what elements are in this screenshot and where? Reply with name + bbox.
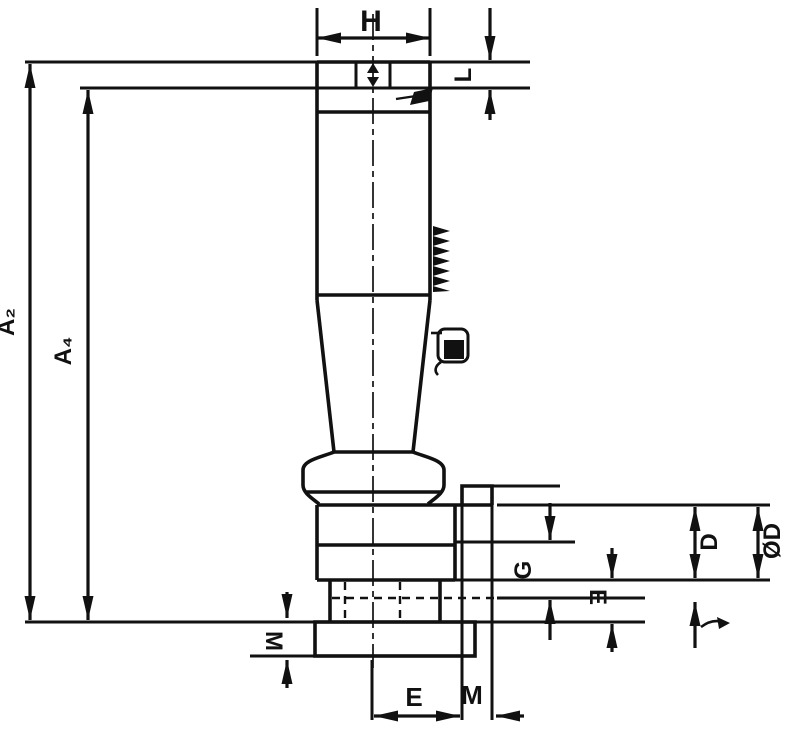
dim-d: D: [695, 507, 723, 578]
dimension-drawing-page: H L A₂ A₄ G E D ØD: [0, 0, 800, 731]
dimension-drawing: H L A₂ A₄ G E D ØD: [0, 0, 800, 731]
small-arrow-marker: [695, 602, 730, 648]
dim-a2: A₂: [0, 64, 30, 620]
dim-l: L: [450, 8, 490, 120]
dim-g: G: [510, 503, 550, 640]
flange: [315, 622, 475, 656]
label-e-vertical: E: [584, 589, 611, 605]
label-a4: A₄: [50, 337, 77, 366]
square-callout: [396, 88, 433, 105]
clamp-notch-detail: [431, 329, 468, 375]
label-m-bottom: M: [461, 680, 483, 710]
label-od: ØD: [759, 523, 786, 559]
label-a2: A₂: [0, 308, 20, 336]
label-m-flange: M: [260, 631, 287, 651]
dim-a4: A₄: [50, 90, 88, 620]
dim-e-bottom: E: [374, 682, 460, 716]
label-g: G: [510, 561, 537, 580]
label-e-bottom: E: [405, 682, 422, 712]
extension-lines: [25, 8, 770, 720]
dim-e-vertical: E: [584, 548, 612, 652]
label-l: L: [450, 68, 477, 83]
label-d: D: [696, 533, 723, 550]
label-h: H: [360, 5, 382, 38]
dim-m-flange: M: [260, 592, 287, 688]
dim-h: H: [317, 5, 430, 38]
knurl-detail: [433, 226, 450, 292]
drive-lug: [462, 486, 492, 505]
dim-od: ØD: [758, 507, 786, 578]
